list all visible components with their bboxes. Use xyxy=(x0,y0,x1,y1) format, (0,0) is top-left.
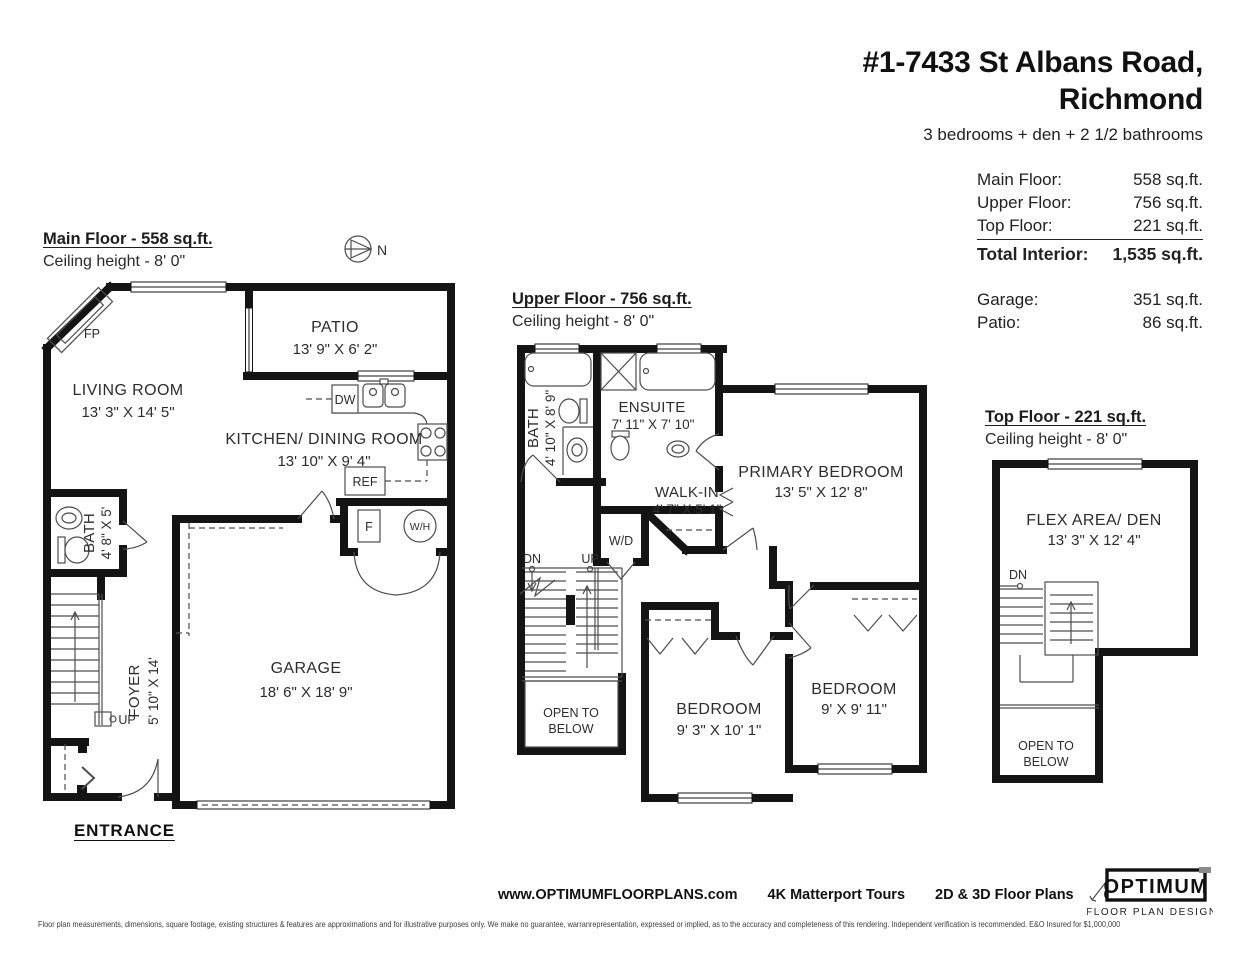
main-stairs xyxy=(51,594,116,726)
walk-in-dims: 4' 7" X 5' 1" xyxy=(653,502,722,517)
flex-area-label: FLEX AREA/ DEN xyxy=(1026,512,1161,529)
ensuite-toilet xyxy=(611,436,629,460)
area-row-top: Top Floor: 221 sq.ft. xyxy=(977,214,1203,240)
address-line-1: #1-7433 St Albans Road, xyxy=(863,44,1203,81)
fridge-label: REF xyxy=(353,475,378,489)
area-row-main: Main Floor: 558 sq.ft. xyxy=(977,168,1203,191)
optimum-logo: OPTIMUM FLOOR PLAN DESIGNS xyxy=(1087,866,1213,920)
upper-floor-title: Upper Floor - 756 sq.ft. Ceiling height … xyxy=(512,290,692,331)
up-label: UP xyxy=(581,552,598,566)
top-floor-ceiling: Ceiling height - 8' 0" xyxy=(985,431,1146,449)
footer-disclaimer: Floor plan measurements, dimensions, squ… xyxy=(38,919,1120,929)
area-value: 351 sq.ft. xyxy=(1133,288,1203,311)
dn-label: DN xyxy=(1009,568,1027,582)
washer-dryer-label: W/D xyxy=(609,534,633,548)
bath-sink xyxy=(567,438,587,462)
flex-area-dims: 13' 3" X 12' 4" xyxy=(1047,532,1140,549)
footer-plans: 2D & 3D Floor Plans xyxy=(935,887,1074,903)
top-floor-plan: FLEX AREA/ DEN 13' 3" X 12' 4" DN OPEN T… xyxy=(988,458,1202,790)
area-label: Garage: xyxy=(977,288,1038,311)
upper-floor-plan: BATH 4' 10" X 8' 9" ENSUITE 7' 11" X 7' … xyxy=(506,338,930,808)
dishwasher-label: DW xyxy=(335,393,356,407)
bedroom-mid-dims: 9' 3" X 10' 1" xyxy=(677,722,762,739)
main-bath-label: BATH xyxy=(81,513,98,553)
bedroom-mid-label: BEDROOM xyxy=(676,701,761,718)
ensuite-label: ENSUITE xyxy=(618,399,685,416)
open-below-line2: BELOW xyxy=(1023,755,1068,769)
furnace-label: F xyxy=(365,520,373,534)
upper-floor-ceiling: Ceiling height - 8' 0" xyxy=(512,313,692,331)
area-value: 86 sq.ft. xyxy=(1143,311,1203,334)
area-row-patio: Patio: 86 sq.ft. xyxy=(977,311,1203,334)
main-floor-title-text: Main Floor - 558 sq.ft. xyxy=(43,230,213,249)
main-doors xyxy=(118,491,440,797)
top-stairs xyxy=(1000,582,1099,708)
living-room-dims: 13' 3" X 14' 5" xyxy=(81,404,174,421)
footer-website[interactable]: www.OPTIMUMFLOORPLANS.com xyxy=(498,887,738,903)
foyer-dims: 5' 10" X 14' xyxy=(146,657,161,725)
logo-tagline: FLOOR PLAN DESIGNS xyxy=(1087,907,1213,918)
bedroom-right-label: BEDROOM xyxy=(811,681,896,698)
bath-sink xyxy=(56,507,82,529)
area-label: Total Interior: xyxy=(977,243,1088,266)
patio-dims: 13' 9" X 6' 2" xyxy=(293,341,378,358)
compass-north-label: N xyxy=(377,242,387,258)
listing-subtitle: 3 bedrooms + den + 2 1/2 bathrooms xyxy=(863,125,1203,145)
garage-dims: 18' 6" X 18' 9" xyxy=(259,684,352,701)
water-heater-label: W/H xyxy=(410,521,430,533)
north-compass-icon: N xyxy=(342,231,392,267)
toilet xyxy=(559,399,579,423)
upper-bath-label: BATH xyxy=(525,408,542,448)
area-label: Patio: xyxy=(977,311,1020,334)
open-below-line2: BELOW xyxy=(548,722,593,736)
area-label: Top Floor: xyxy=(977,214,1053,237)
header-block: #1-7433 St Albans Road, Richmond 3 bedro… xyxy=(863,44,1203,145)
address-line-2: Richmond xyxy=(863,81,1203,118)
main-floor-plan: LIVING ROOM 13' 3" X 14' 5" PATIO 13' 9"… xyxy=(36,278,460,818)
footer-tours: 4K Matterport Tours xyxy=(768,887,906,903)
dn-label: DN xyxy=(523,552,541,566)
main-floor-title: Main Floor - 558 sq.ft. Ceiling height -… xyxy=(43,230,213,271)
area-value: 558 sq.ft. xyxy=(1133,168,1203,191)
garage-label: GARAGE xyxy=(271,660,342,677)
entrance-label: ENTRANCE xyxy=(74,821,175,841)
primary-bedroom-label: PRIMARY BEDROOM xyxy=(738,464,903,481)
kitchen-label: KITCHEN/ DINING ROOM xyxy=(225,431,422,448)
top-floor-title: Top Floor - 221 sq.ft. Ceiling height - … xyxy=(985,408,1146,449)
main-floor-ceiling: Ceiling height - 8' 0" xyxy=(43,253,213,271)
ensuite-tub xyxy=(640,353,715,390)
area-summary: Main Floor: 558 sq.ft. Upper Floor: 756 … xyxy=(977,168,1203,334)
area-row-upper: Upper Floor: 756 sq.ft. xyxy=(977,191,1203,214)
up-label: UP xyxy=(118,713,135,727)
area-label: Main Floor: xyxy=(977,168,1062,191)
top-floor-windows xyxy=(1048,459,1142,469)
area-value: 756 sq.ft. xyxy=(1133,191,1203,214)
foyer-label: FOYER xyxy=(126,664,143,717)
upper-bath-dims: 4' 10" X 8' 9" xyxy=(543,390,558,466)
ensuite-dims: 7' 11" X 7' 10" xyxy=(612,417,695,432)
fireplace-label: FP xyxy=(84,327,100,341)
kitchen-dims: 13' 10" X 9' 4" xyxy=(277,453,370,470)
open-below-line1: OPEN TO xyxy=(1018,739,1074,753)
bedroom-right-dims: 9' X 9' 11" xyxy=(821,701,887,718)
ensuite-sink xyxy=(667,441,689,457)
primary-bedroom-dims: 13' 5" X 12' 8" xyxy=(774,484,867,501)
area-label: Upper Floor: xyxy=(977,191,1071,214)
logo-name: OPTIMUM xyxy=(1104,876,1209,898)
area-value: 221 sq.ft. xyxy=(1133,214,1203,237)
area-value: 1,535 sq.ft. xyxy=(1113,243,1203,266)
main-bath-dims: 4' 8" X 5' xyxy=(99,507,114,560)
bathtub xyxy=(525,353,591,386)
top-floor-title-text: Top Floor - 221 sq.ft. xyxy=(985,408,1146,427)
area-row-total: Total Interior: 1,535 sq.ft. xyxy=(977,243,1203,266)
walk-in-label: WALK-IN xyxy=(655,484,719,501)
area-row-garage: Garage: 351 sq.ft. xyxy=(977,288,1203,311)
open-below-line1: OPEN TO xyxy=(543,706,599,720)
patio-label: PATIO xyxy=(311,319,359,336)
upper-floor-title-text: Upper Floor - 756 sq.ft. xyxy=(512,290,692,309)
living-room-label: LIVING ROOM xyxy=(72,382,183,399)
